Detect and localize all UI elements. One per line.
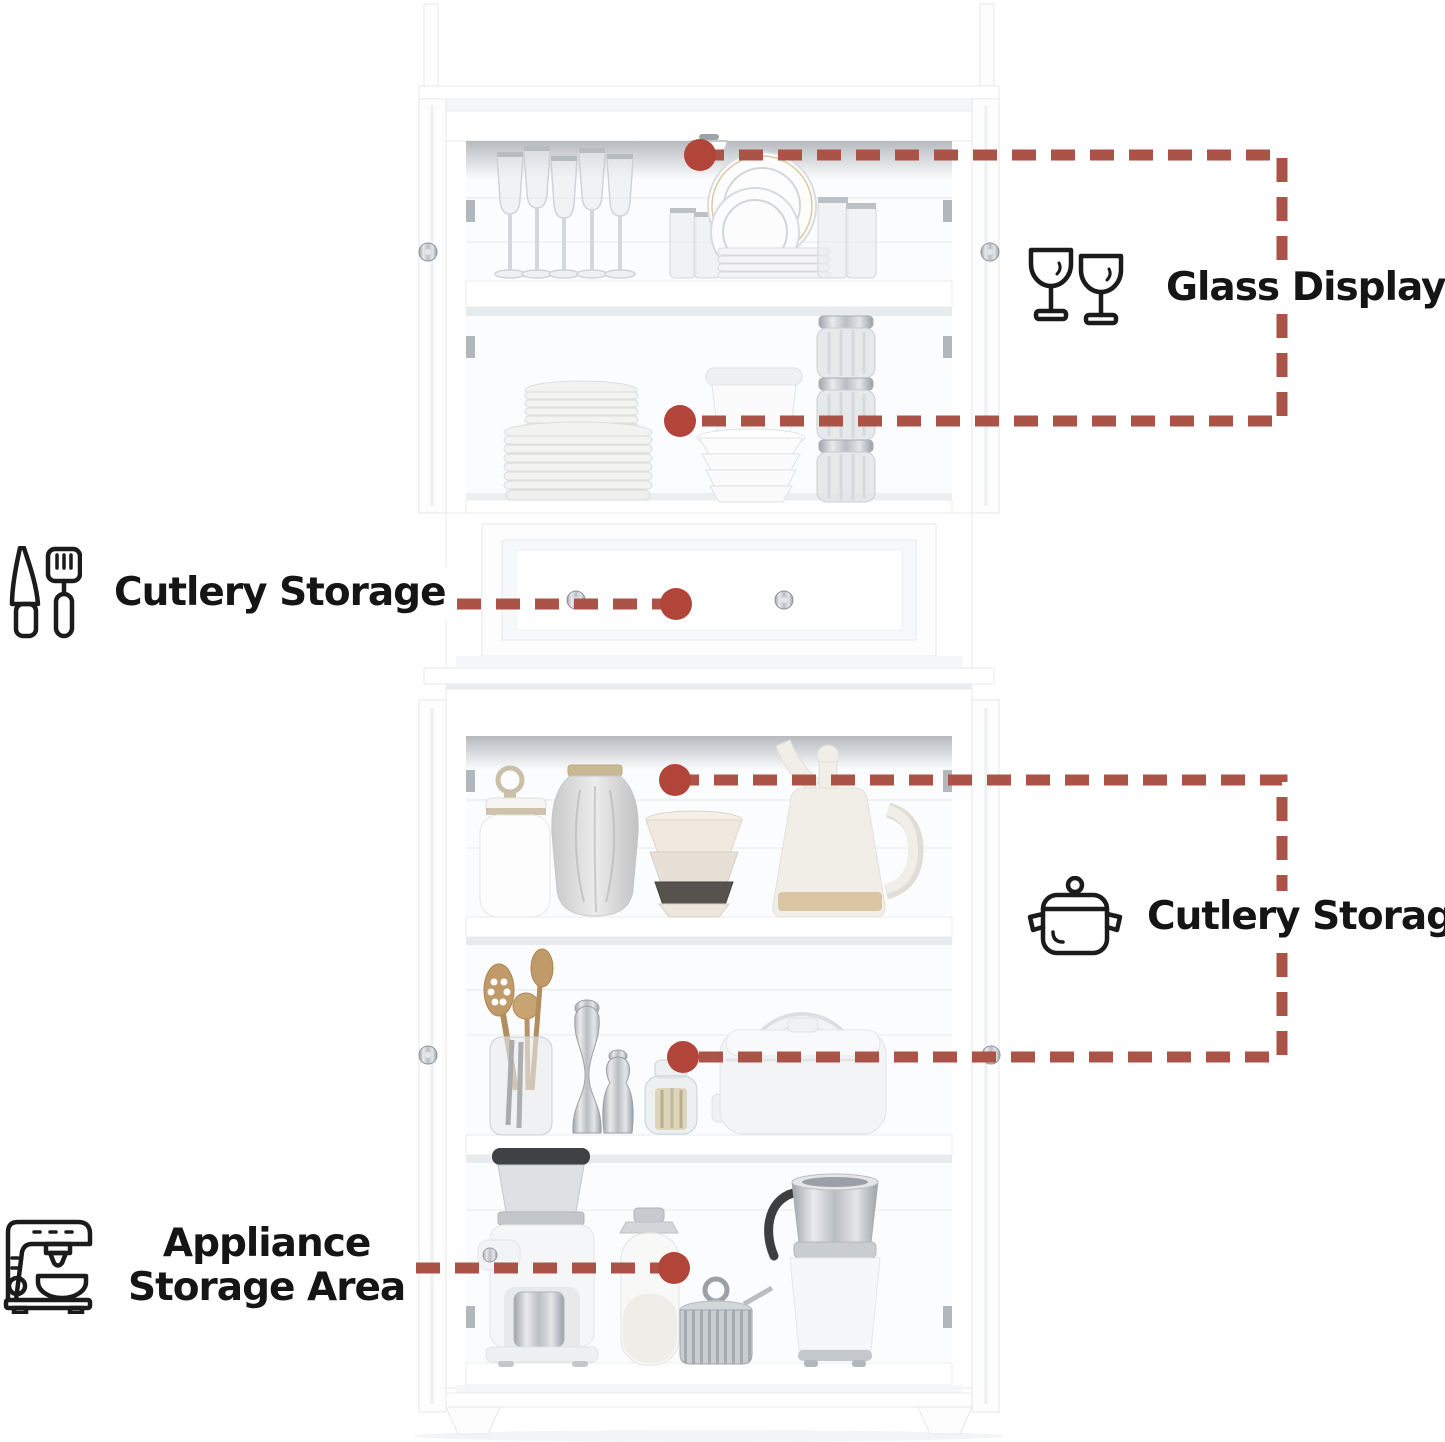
callout-dot [684,139,716,171]
callout-cutlery-storage-left: Cutlery Storage [8,546,454,640]
callout-dot [658,1252,690,1284]
callout-cutlery-storage-left-label: Cutlery Storage [106,567,454,619]
callout-glass-display-label: Glass Display [1158,262,1445,314]
egg-cooker [712,1018,886,1134]
milk-bottle [620,1208,679,1365]
base-molding [424,1393,994,1407]
plate-stacks [504,381,652,500]
bracket-foot-right [918,1407,972,1434]
appliance-label-line1: Appliance [163,1221,370,1266]
callout-cutlery-storage-right-label: Cutlery Storage [1139,891,1445,943]
plate-stack-small [718,248,830,278]
floor-shadow [414,1430,1004,1442]
bracket-foot-left [446,1407,500,1434]
callout-dot [660,588,692,620]
open-door-top-edge-right [980,4,994,90]
open-glass-door-left [419,99,446,513]
coffee-machine-icon [2,1218,94,1314]
glass-jars [817,316,875,502]
appliance-label-line2: Storage Area [128,1265,405,1310]
crown-molding [419,86,999,141]
wine-glasses-icon [1028,247,1124,329]
callout-dot [664,405,696,437]
hinge [466,200,475,222]
callout-appliance-storage: Appliance Storage Area [2,1218,413,1314]
open-door-lower-left [419,700,446,1412]
callout-appliance-storage-label: Appliance Storage Area [120,1218,413,1313]
cabinet-floor-board [466,1363,952,1385]
open-door-top-edge-left [424,4,438,90]
bowl-stack [697,429,805,502]
tumblers-right [818,197,876,278]
hinge [466,1306,475,1328]
callout-dot [659,764,691,796]
product-infographic: Glass Display Cutlery Storage Cutlery St… [0,0,1445,1442]
callout-dot [667,1041,699,1073]
open-glass-door-right [972,99,999,513]
glass-shelf-board [466,281,952,307]
callout-glass-display: Glass Display [1028,240,1445,336]
hinge [466,770,475,792]
cooking-pot-icon [1025,876,1125,958]
mid-molding [424,668,994,684]
hinge [943,1306,952,1328]
lower-shelf-board-1 [466,917,952,937]
hinge [943,200,952,222]
hinge [943,336,952,358]
knife-spatula-icon [8,546,82,640]
hinge [466,336,475,358]
callout-cutlery-storage-right: Cutlery Storage [1025,872,1445,962]
patterned-vase [552,765,638,916]
